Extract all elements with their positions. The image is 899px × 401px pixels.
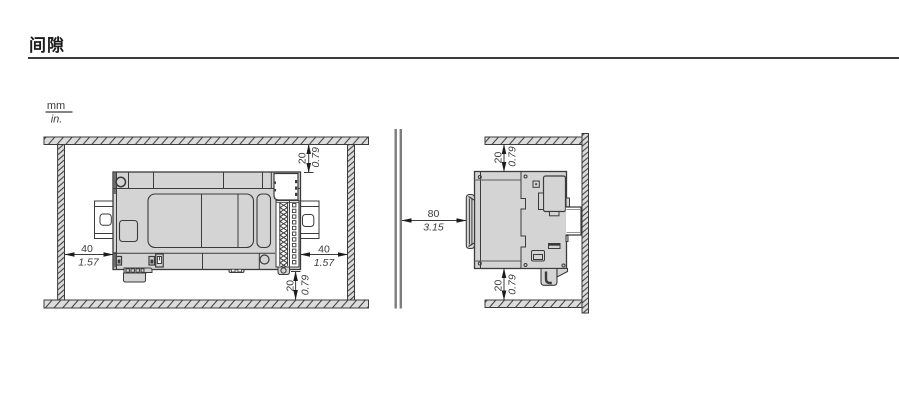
svg-text:0.79: 0.79	[299, 275, 311, 296]
svg-text:80: 80	[428, 208, 440, 220]
svg-text:20: 20	[492, 280, 504, 292]
svg-text:mm: mm	[47, 100, 65, 112]
svg-text:20: 20	[297, 152, 309, 164]
svg-text:40: 40	[318, 244, 330, 256]
svg-text:0.79: 0.79	[506, 146, 518, 167]
svg-text:20: 20	[284, 280, 296, 292]
svg-text:1.57: 1.57	[78, 257, 100, 269]
svg-text:in.: in.	[51, 114, 63, 126]
svg-text:3.15: 3.15	[423, 222, 444, 234]
svg-text:0.79: 0.79	[310, 147, 322, 168]
svg-text:1.57: 1.57	[314, 257, 336, 269]
svg-text:40: 40	[81, 243, 93, 255]
svg-text:0.79: 0.79	[506, 274, 518, 295]
svg-text:20: 20	[492, 152, 504, 164]
